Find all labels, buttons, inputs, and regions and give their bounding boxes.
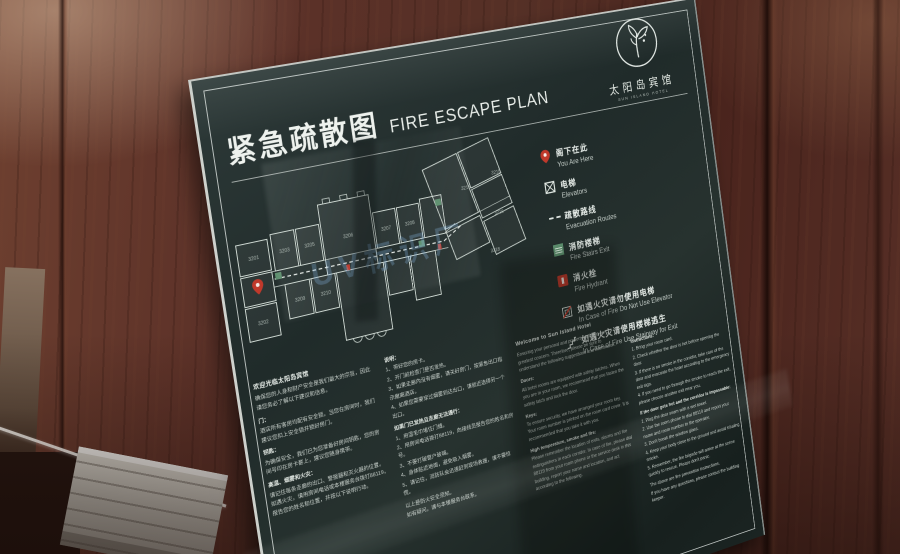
fire-hydrant-icon	[557, 272, 574, 288]
title-en: FIRE ESCAPE PLAN	[388, 88, 550, 137]
column-en-instructions: Instructions: 1. Bring your room card.2.…	[630, 313, 754, 554]
fire-escape-sign: 太阳岛宾馆 SUN ISLAND HOTEL 紧急疏散图FIRE ESCAPE …	[188, 80, 808, 554]
sign-panel: 太阳岛宾馆 SUN ISLAND HOTEL 紧急疏散图FIRE ESCAPE …	[188, 0, 765, 554]
you-are-here-pin-icon	[540, 147, 557, 164]
photo-of-fire-escape-sign: 太阳岛宾馆 SUN ISLAND HOTEL 紧急疏散图FIRE ESCAPE …	[0, 0, 900, 554]
fire-stairs-icon	[553, 241, 570, 257]
